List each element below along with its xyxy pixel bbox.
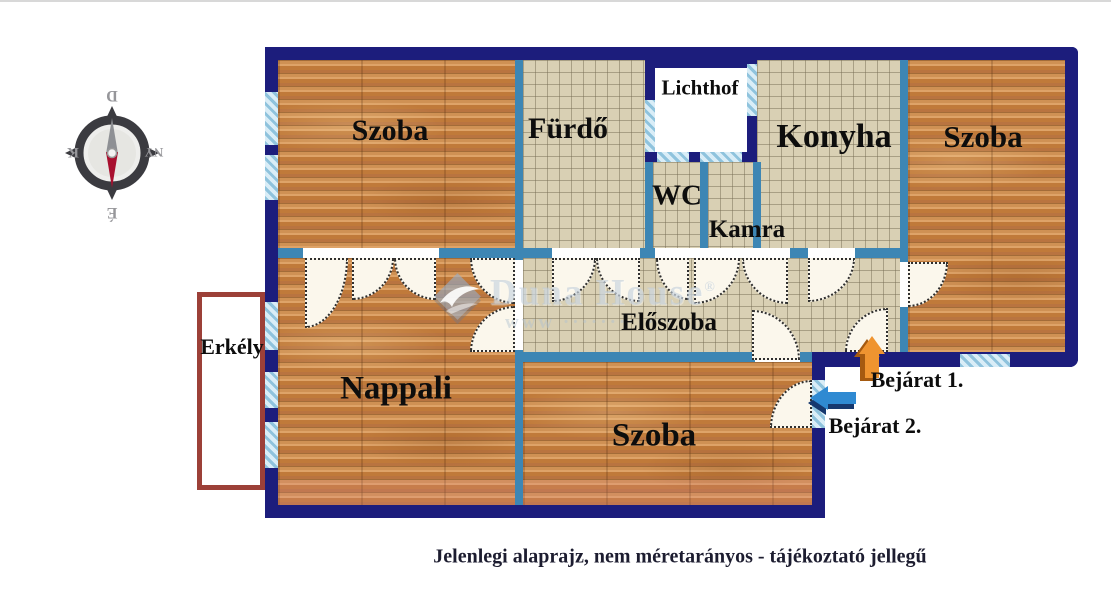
room-label-kamra: Kamra	[709, 216, 785, 244]
compass-rose-icon: D É K NY	[54, 82, 170, 228]
wall-szoba-furdo	[515, 60, 523, 248]
room-floor-szoba-top-left	[278, 60, 515, 248]
floorplan-image: D É K NY	[0, 0, 1111, 600]
window-nappali-2	[265, 372, 278, 408]
entrance-label-bejarat2: Bejárat 2.	[829, 413, 922, 439]
window-nappali-1	[265, 302, 278, 350]
door-opening	[552, 248, 640, 258]
room-label-lichthof: Lichthof	[661, 76, 738, 101]
window-szoba-tl-2	[265, 155, 278, 200]
floor-tint-strip	[278, 480, 812, 505]
lichthof-window-bottom-2	[700, 152, 742, 162]
wall-szoba-bottom-top-b	[800, 352, 812, 362]
door-opening	[303, 248, 439, 258]
room-floor-szoba-top-right	[908, 60, 1065, 352]
compass-label-k: K	[67, 144, 79, 160]
room-label-szoba-top-right: Szoba	[943, 119, 1022, 155]
door-opening	[655, 248, 790, 258]
wall-szoba-bottom-top-a	[523, 352, 755, 362]
room-label-erkely: Erkély	[200, 334, 264, 360]
watermark-registered-mark: ®	[704, 280, 716, 295]
entrance-label-bejarat1: Bejárat 1.	[871, 367, 964, 393]
lichthof-window-left	[645, 100, 655, 152]
room-label-konyha: Konyha	[776, 118, 891, 156]
room-label-szoba-top-left: Szoba	[352, 114, 429, 148]
room-floor-furdo	[523, 60, 645, 248]
window-nappali-3	[265, 422, 278, 468]
window-bottom-right	[960, 354, 1010, 367]
wall-konyha-szoba	[900, 60, 908, 262]
compass-label-ny: NY	[144, 145, 163, 160]
room-label-nappali: Nappali	[340, 371, 452, 408]
window-szoba-tl-1	[265, 92, 278, 145]
door-opening	[900, 262, 908, 307]
room-label-furdo: Fürdő	[528, 112, 608, 146]
door-opening	[808, 248, 855, 258]
balcony-outline	[197, 292, 265, 490]
compass-label-d: D	[106, 87, 118, 104]
lichthof-window-right	[747, 64, 757, 116]
top-border-line	[0, 0, 1111, 2]
watermark-swoosh-icon	[434, 273, 481, 320]
wall-right	[1065, 47, 1078, 367]
room-label-wc: WC	[652, 180, 702, 213]
wall-bottom-left	[265, 505, 825, 518]
room-label-eloszoba: Előszoba	[621, 309, 717, 337]
wall-entrance-right	[812, 352, 825, 518]
room-label-szoba-bottom: Szoba	[612, 418, 696, 455]
caption-text: Jelenlegi alaprajz, nem méretarányos - t…	[433, 546, 926, 569]
compass-label-e: É	[107, 204, 118, 223]
wall-eloszoba-szoba	[900, 307, 908, 352]
lichthof-window-bottom-1	[657, 152, 689, 162]
